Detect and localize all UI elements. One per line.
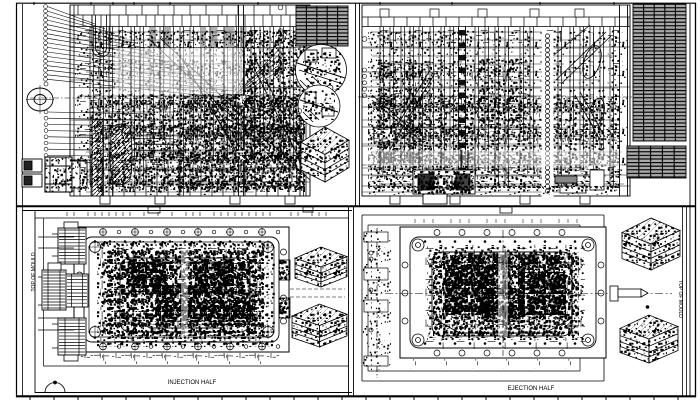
svg-text:TOP OF MOULD: TOP OF MOULD: [31, 252, 37, 292]
svg-text:TOP OF MOULD: TOP OF MOULD: [677, 280, 683, 318]
svg-text:EJECTION HALF: EJECTION HALF: [508, 386, 555, 392]
svg-text:INJECTION HALF: INJECTION HALF: [168, 380, 217, 386]
